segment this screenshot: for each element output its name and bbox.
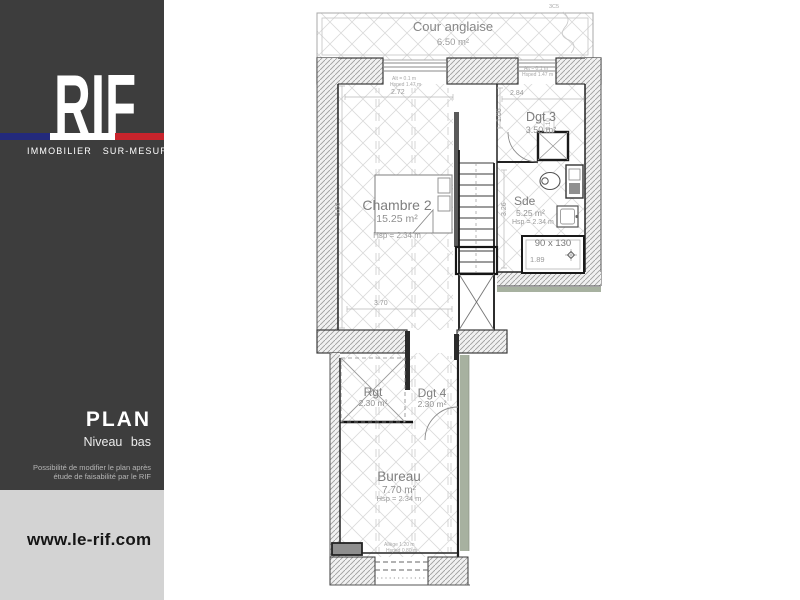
room-area-sde: 5.25 m²	[516, 209, 545, 218]
dim-284: 2.84	[510, 90, 524, 98]
dim-010: 0.10	[546, 118, 552, 130]
pillow	[438, 178, 450, 193]
room-label-dgt3: Dgt 3	[505, 111, 577, 125]
room-height-chambre2: Hsp = 2.34 m	[338, 232, 456, 241]
room-label-sde: Sde	[514, 195, 535, 208]
stair-treads	[459, 163, 494, 273]
bottom-window	[375, 562, 428, 570]
dim-326: 3.26	[501, 202, 508, 216]
room-label-cour: Cour anglaise	[320, 20, 586, 34]
room-label-bureau: Bureau	[340, 470, 458, 485]
dim-272: 2.72	[391, 89, 405, 97]
dim-566: 5.66	[335, 202, 342, 216]
annotation-top-right: 3C5	[549, 4, 559, 10]
room-height-bureau: Hsp = 2.34 m	[340, 495, 458, 503]
window-note-top1-l2: Hsped 1.47 m	[390, 83, 421, 89]
room-area-cour: 6.50 m²	[320, 38, 586, 48]
insulation-strip-right	[497, 287, 601, 292]
window-note-top2-l2: Hsped 1.47 m	[522, 73, 553, 79]
toilet	[540, 173, 560, 190]
shower-size-label: 90 x 130	[523, 239, 583, 249]
shower-depth-label: 1.89	[530, 256, 545, 264]
room-label-chambre2: Chambre 2	[338, 198, 456, 213]
radiator	[332, 543, 362, 555]
dim-106: 1.06	[496, 108, 503, 122]
room-height-sde: Hsp = 2.34 m	[512, 219, 554, 227]
insulation-strip-lower	[460, 355, 469, 551]
room-area-rgt: 2.30 m²	[341, 399, 405, 408]
room-area-dgt4: 2.30 m²	[406, 400, 458, 409]
room-area-dgt3: 3.50 m²	[505, 126, 577, 136]
staircase	[454, 112, 497, 330]
dim-370: 3.70	[374, 300, 388, 308]
room-area-chambre2: 15.25 m²	[338, 214, 456, 226]
window-note-bottom-l2: Hsped 0.80 m	[386, 549, 417, 555]
